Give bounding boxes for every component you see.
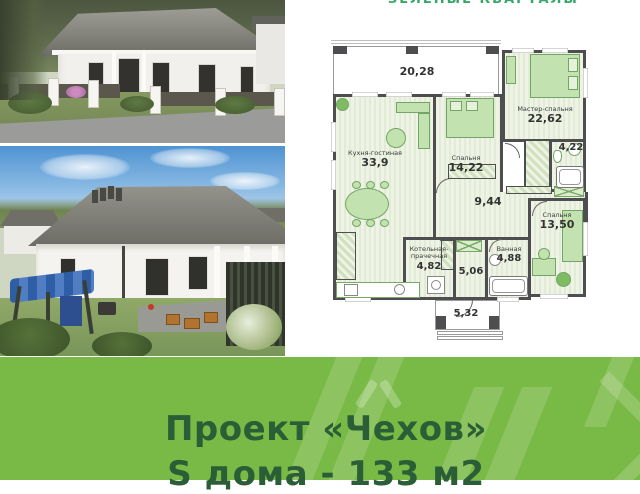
desk <box>532 258 556 276</box>
sofa <box>418 113 430 149</box>
label-bathroom: Ванная 4,88 <box>490 246 528 265</box>
label-kitchen-living: Кухня-гостиная 33,9 <box>340 150 410 170</box>
kitchen-sink <box>394 284 405 295</box>
neighbor-house <box>256 24 285 84</box>
label-boiler-laundry: Котельная-прачечная 4,82 <box>406 246 452 272</box>
chimney <box>108 186 114 199</box>
window-gap <box>331 122 336 152</box>
bush <box>215 96 255 114</box>
chair <box>380 181 389 189</box>
patio-table <box>184 318 200 329</box>
plant <box>336 98 349 111</box>
stove <box>344 284 358 296</box>
chimney <box>100 188 106 201</box>
porch-step <box>437 331 503 335</box>
bathtub <box>556 166 584 188</box>
tiled-floor <box>336 232 356 280</box>
window-gap <box>540 294 568 299</box>
flower-bush <box>66 86 86 98</box>
bush <box>120 96 154 112</box>
coffee-table <box>386 128 406 148</box>
fence-post <box>274 88 285 116</box>
chair <box>352 181 361 189</box>
washer-door <box>431 280 441 290</box>
closet-hatch <box>524 139 552 192</box>
window <box>188 256 208 290</box>
playground-slide <box>60 296 82 326</box>
patio-chair <box>204 312 218 323</box>
label-porch: 5,32 <box>446 308 486 320</box>
dresser <box>506 56 516 84</box>
terrace-column <box>214 246 220 298</box>
window-gap <box>470 92 494 97</box>
wall-block <box>406 46 418 54</box>
chair <box>380 219 389 227</box>
shelf-xbox <box>456 240 482 252</box>
window-gap <box>583 222 588 256</box>
cloud <box>150 148 230 168</box>
photo-house-front <box>0 0 285 143</box>
window-gap <box>583 68 588 98</box>
label-entry: 5,06 <box>455 266 487 278</box>
window-gap <box>542 48 568 53</box>
cloud <box>40 154 130 180</box>
flower-bush <box>226 304 282 350</box>
gutter-pipe <box>122 246 125 304</box>
label-bathroom-small: 4,22 <box>556 142 586 154</box>
pillow <box>568 76 578 90</box>
label-hall: 9,44 <box>468 196 508 209</box>
porch-pier <box>436 316 446 329</box>
fence-post <box>88 80 99 108</box>
photo-house-back <box>0 146 285 356</box>
chimney <box>92 190 98 203</box>
tree-left <box>0 0 48 100</box>
window-gap <box>442 92 466 97</box>
brand-logo-text: ЗЕЛЕНЫЕ КВАРТАЛЫ <box>388 0 598 7</box>
dining-table <box>345 188 389 220</box>
window <box>145 258 169 296</box>
porch-pier <box>489 316 499 329</box>
pillow <box>466 101 478 111</box>
project-area-subtitle: S дома - 133 м2 <box>0 454 640 494</box>
chair <box>538 248 550 260</box>
red-toy <box>148 304 154 310</box>
pillow <box>568 58 578 72</box>
window-gap <box>386 92 412 97</box>
chair <box>352 219 361 227</box>
roof-edge-line <box>331 43 501 44</box>
label-bedroom3: Спальня 13,50 <box>532 212 582 232</box>
chair <box>366 219 375 227</box>
label-terrace: 20,28 <box>395 66 439 79</box>
porch-step <box>437 336 503 340</box>
label-master-bedroom: Мастер-спальня 22,62 <box>505 106 585 126</box>
sofa <box>396 102 430 113</box>
window-gap <box>497 297 519 302</box>
roof-edge-line <box>331 40 501 41</box>
wall-block <box>333 46 347 54</box>
pillow <box>450 101 462 111</box>
bush <box>92 332 152 356</box>
wall-block <box>486 46 499 54</box>
project-title: Проект «Чехов» <box>0 409 640 449</box>
bathtub <box>489 276 528 296</box>
chimney <box>116 188 122 201</box>
chair <box>366 181 375 189</box>
patio-chair <box>166 314 180 325</box>
window-gap <box>331 160 336 190</box>
window-gap <box>512 48 534 53</box>
door-arc <box>505 143 520 158</box>
label-bedroom2: Спальня 14,22 <box>438 155 494 175</box>
closet-hatch <box>506 186 552 194</box>
plant <box>556 272 571 287</box>
grill <box>98 302 116 315</box>
window <box>240 66 254 94</box>
window-gap <box>352 92 378 97</box>
